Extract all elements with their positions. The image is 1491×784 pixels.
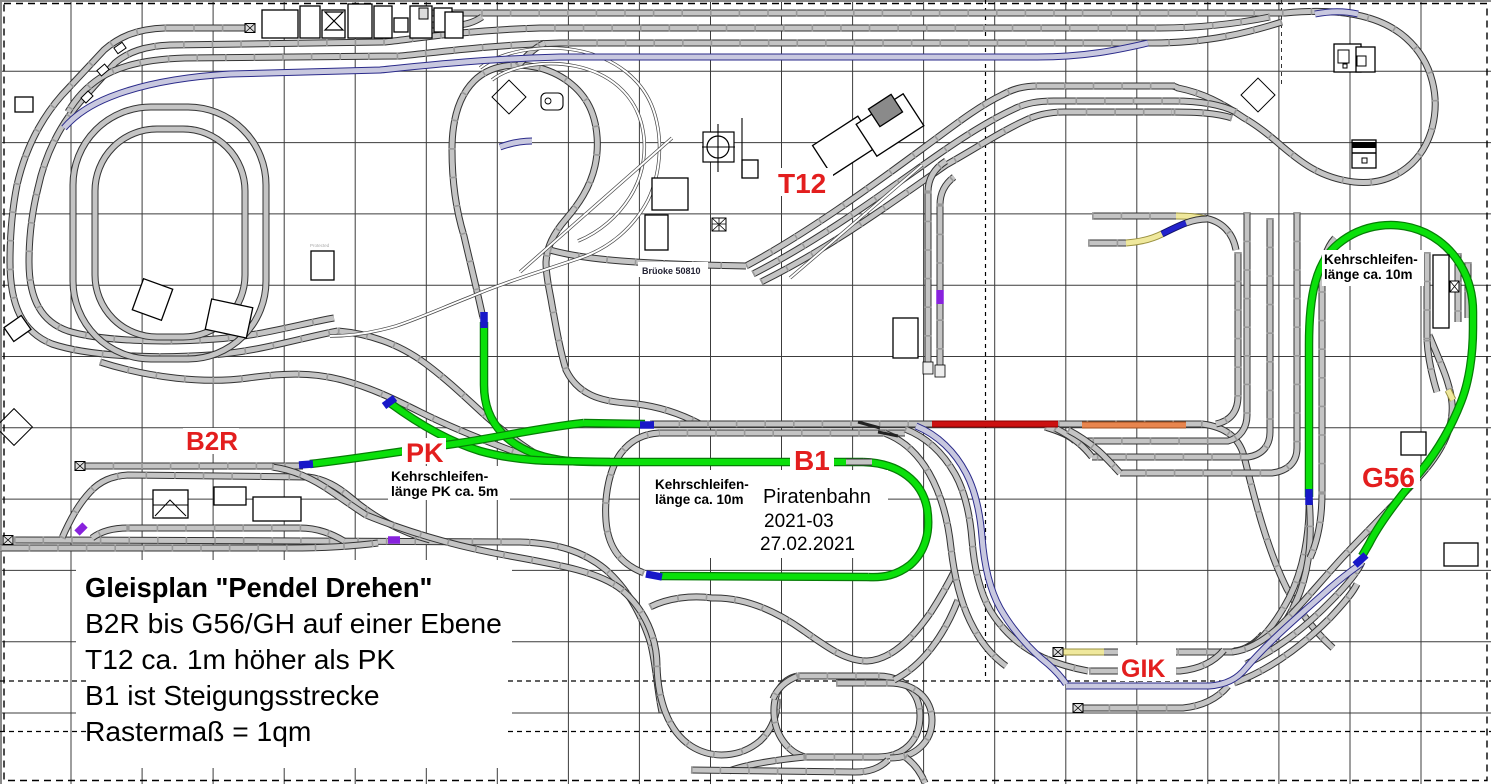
svg-text:Brüoke 50810: Brüoke 50810 (642, 266, 701, 276)
svg-text:Rastermaß = 1qm: Rastermaß = 1qm (85, 715, 311, 747)
svg-text:G56: G56 (1362, 462, 1415, 493)
svg-text:T12: T12 (778, 168, 826, 199)
svg-text:B1: B1 (794, 445, 830, 476)
svg-text:B2R: B2R (186, 426, 238, 456)
svg-text:PK: PK (406, 438, 444, 468)
svg-text:T12 ca. 1m höher als PK: T12 ca. 1m höher als PK (85, 643, 395, 675)
svg-text:länge ca. 10m: länge ca. 10m (1324, 267, 1413, 282)
svg-text:27.02.2021: 27.02.2021 (760, 534, 855, 555)
svg-text:Protected: Protected (310, 243, 330, 248)
svg-text:B1 ist Steigungsstrecke: B1 ist Steigungsstrecke (85, 679, 380, 711)
svg-text:B2R bis G56/GH auf einer Ebene: B2R bis G56/GH auf einer Ebene (85, 607, 502, 639)
svg-text:Kehrschleifen-: Kehrschleifen- (391, 468, 489, 484)
svg-text:Kehrschleifen-: Kehrschleifen- (1324, 252, 1418, 267)
svg-text:GIK: GIK (1121, 655, 1165, 683)
svg-text:länge PK ca. 5m: länge PK ca. 5m (391, 483, 498, 499)
svg-text:2021-03: 2021-03 (764, 511, 834, 532)
svg-text:Piratenbahn: Piratenbahn (763, 486, 871, 508)
svg-text:länge ca. 10m: länge ca. 10m (655, 492, 744, 507)
svg-text:Kehrschleifen-: Kehrschleifen- (655, 477, 749, 492)
svg-text:Gleisplan "Pendel Drehen": Gleisplan "Pendel Drehen" (85, 572, 432, 603)
